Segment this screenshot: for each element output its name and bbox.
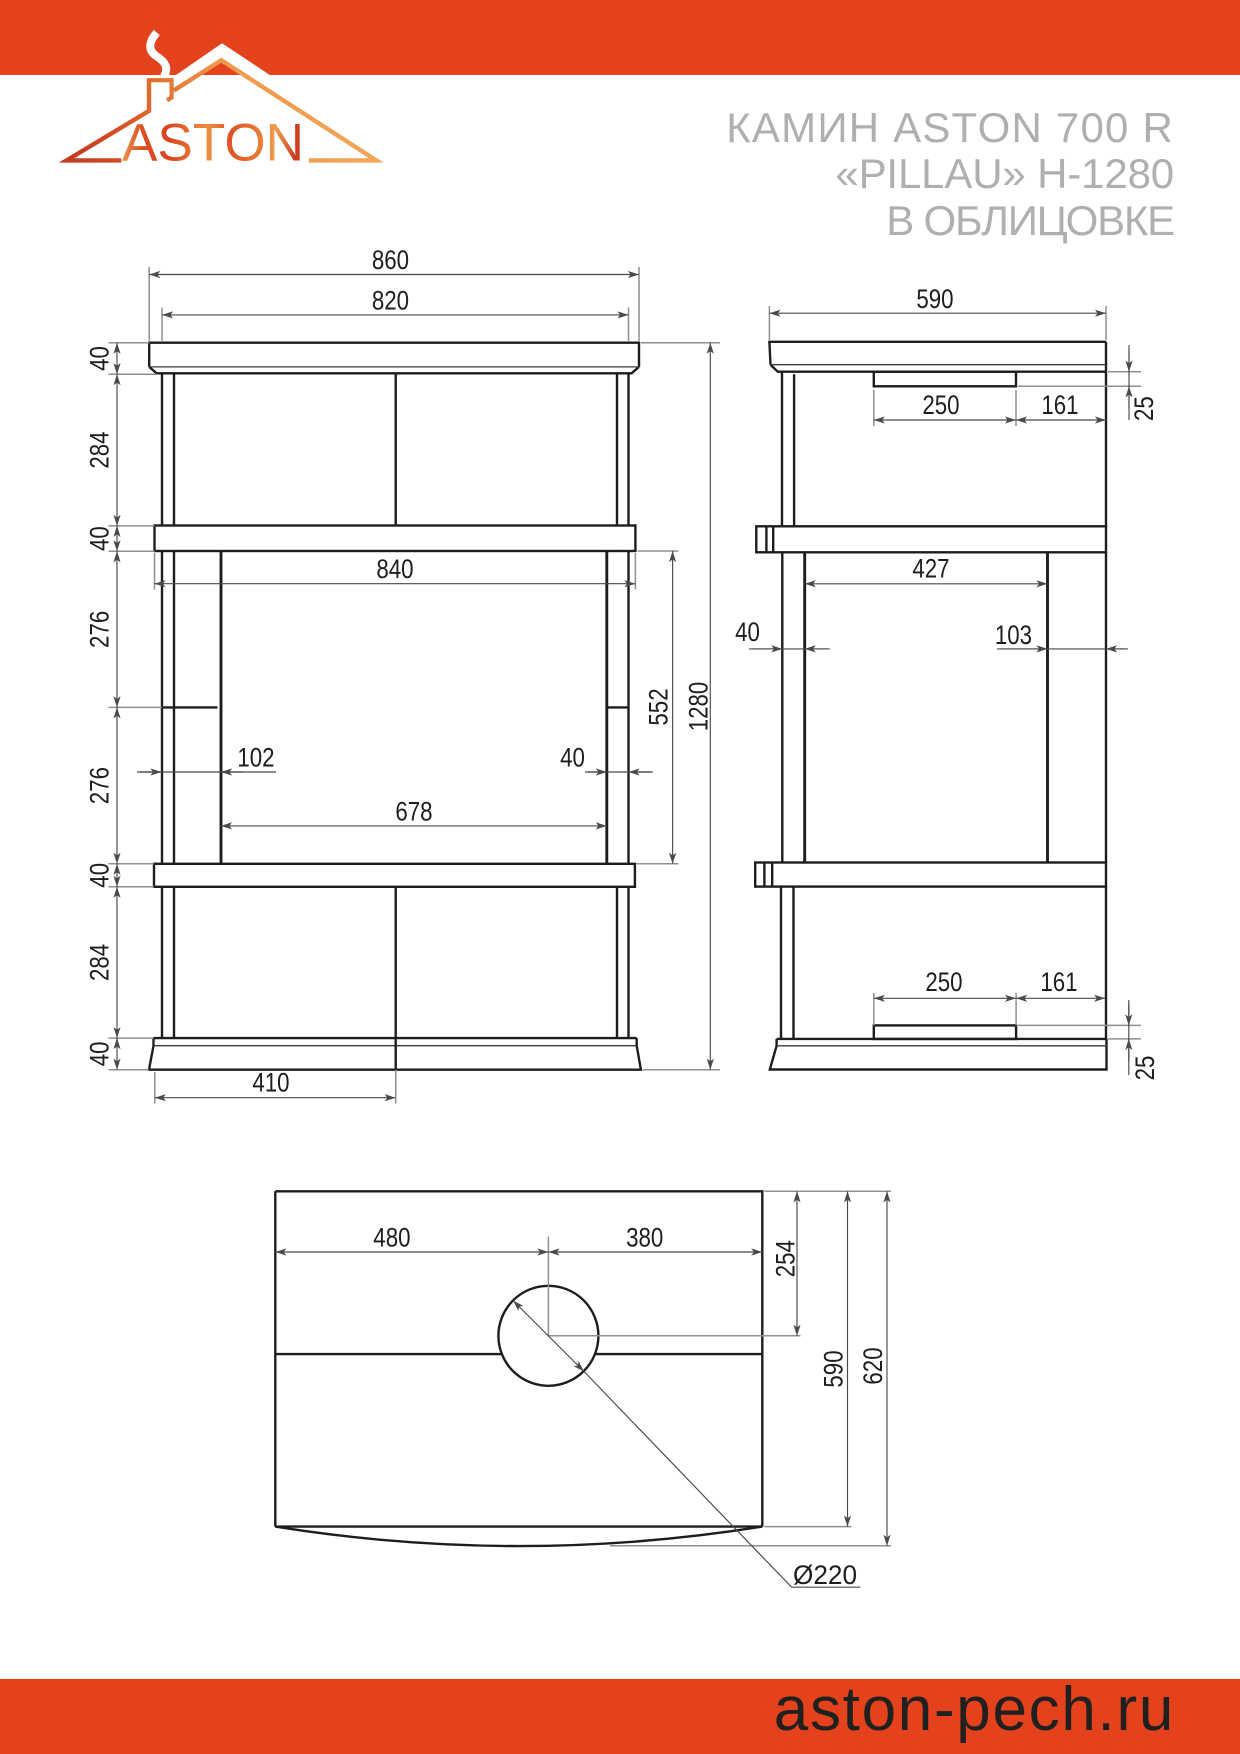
svg-text:ASTON: ASTON (122, 114, 304, 173)
svg-text:25: 25 (1129, 396, 1159, 421)
svg-text:Ø220: Ø220 (793, 1560, 857, 1590)
svg-text:40: 40 (560, 743, 585, 773)
svg-text:552: 552 (644, 688, 674, 725)
svg-text:161: 161 (1041, 390, 1078, 420)
svg-text:620: 620 (858, 1347, 888, 1384)
svg-text:284: 284 (85, 431, 115, 468)
svg-text:840: 840 (376, 554, 413, 584)
svg-text:276: 276 (85, 611, 115, 648)
svg-text:102: 102 (237, 743, 274, 773)
svg-text:678: 678 (395, 796, 432, 826)
svg-text:410: 410 (252, 1068, 289, 1098)
svg-text:161: 161 (1040, 967, 1077, 997)
svg-text:25: 25 (1130, 1056, 1160, 1081)
svg-text:380: 380 (626, 1222, 663, 1252)
svg-text:40: 40 (735, 617, 760, 647)
svg-text:40: 40 (85, 346, 115, 371)
svg-text:250: 250 (925, 967, 962, 997)
svg-text:103: 103 (995, 620, 1032, 650)
svg-text:40: 40 (85, 863, 115, 888)
svg-text:590: 590 (819, 1350, 849, 1387)
svg-text:590: 590 (916, 284, 953, 314)
svg-text:40: 40 (85, 526, 115, 551)
svg-text:276: 276 (85, 767, 115, 804)
svg-text:250: 250 (922, 390, 959, 420)
svg-text:480: 480 (373, 1222, 410, 1252)
svg-text:254: 254 (771, 1240, 801, 1277)
svg-text:860: 860 (372, 245, 409, 275)
svg-text:820: 820 (372, 286, 409, 316)
svg-text:427: 427 (912, 554, 949, 584)
svg-text:284: 284 (85, 944, 115, 981)
svg-text:1280: 1280 (684, 682, 714, 732)
svg-text:40: 40 (85, 1042, 115, 1067)
